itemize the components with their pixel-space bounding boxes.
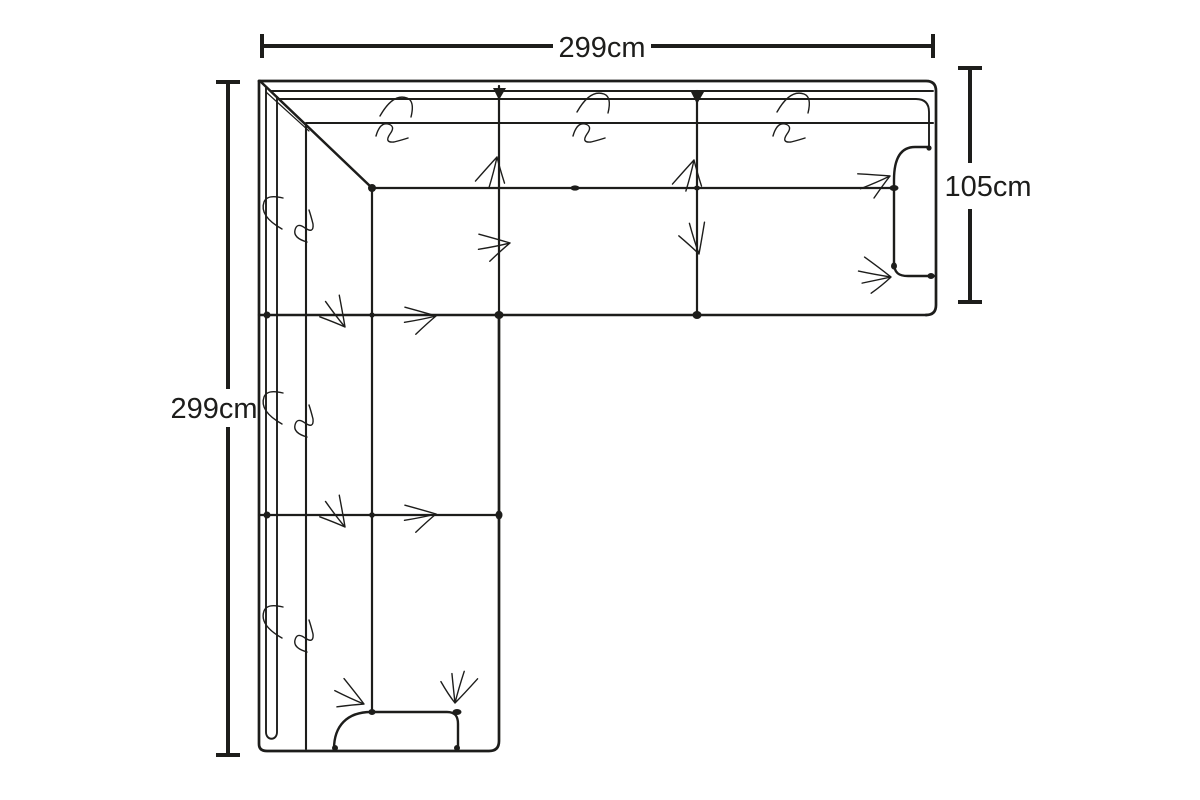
dimension-left-label: 299cm: [170, 393, 257, 425]
right-arm-outline: [894, 147, 934, 276]
dimension-right-label: 105cm: [944, 171, 1031, 203]
sofa-outer-left-bottom-edge: [259, 81, 499, 751]
sofa-outline: [259, 81, 936, 751]
sofa-dimension-diagram: 299cm 299cm 105cm: [0, 0, 1200, 800]
tufting-marks: [263, 93, 895, 718]
corner-diagonal-seam-inner: [266, 92, 309, 131]
dimension-top: 299cm: [262, 32, 933, 64]
sofa-outer-top-right-edge: [259, 81, 936, 315]
sofa-top-view-drawing: 299cm 299cm 105cm: [0, 0, 1200, 800]
bottom-arm-outline: [334, 712, 458, 749]
dimension-right: 105cm: [944, 68, 1031, 302]
dimension-left: 299cm: [170, 82, 257, 755]
dimension-top-label: 299cm: [558, 32, 645, 64]
